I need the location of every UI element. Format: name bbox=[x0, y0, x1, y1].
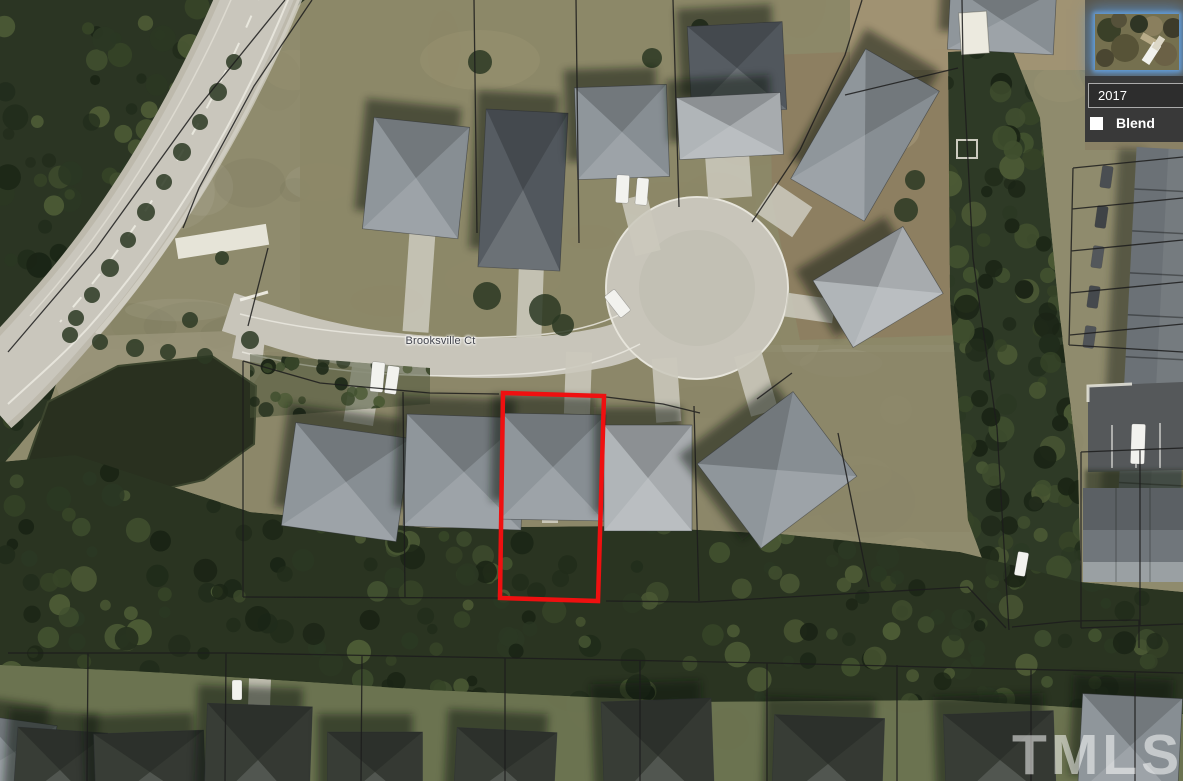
house bbox=[937, 0, 1057, 55]
layer-panel-controls: 2017 Blend bbox=[1085, 76, 1183, 142]
layer-thumbnail-image bbox=[1095, 14, 1179, 70]
house bbox=[443, 709, 558, 781]
house bbox=[666, 74, 784, 160]
house bbox=[761, 696, 885, 781]
house bbox=[83, 712, 206, 781]
house bbox=[590, 680, 714, 781]
house bbox=[468, 90, 569, 271]
house bbox=[194, 685, 313, 781]
car bbox=[1130, 424, 1145, 464]
townhouse-lower-block bbox=[1083, 470, 1183, 582]
house bbox=[352, 98, 471, 238]
house bbox=[490, 395, 606, 521]
year-select[interactable]: 2017 bbox=[1088, 83, 1183, 108]
blend-row: Blend bbox=[1085, 114, 1183, 136]
layers-panel: 2017 Blend bbox=[1085, 0, 1183, 142]
blend-label: Blend bbox=[1116, 115, 1155, 131]
blend-checkbox[interactable] bbox=[1090, 117, 1103, 130]
house bbox=[271, 403, 413, 541]
house bbox=[1067, 675, 1183, 781]
aerial-map-canvas[interactable] bbox=[0, 0, 1183, 781]
car bbox=[615, 175, 629, 204]
house bbox=[933, 693, 1057, 781]
car bbox=[635, 178, 649, 206]
house bbox=[594, 407, 692, 531]
car bbox=[232, 680, 242, 700]
layer-thumbnail[interactable] bbox=[1095, 14, 1179, 70]
house bbox=[318, 714, 423, 781]
house bbox=[564, 66, 670, 179]
map-viewport: Brooksville Ct 2017 Blend bbox=[0, 0, 1183, 781]
